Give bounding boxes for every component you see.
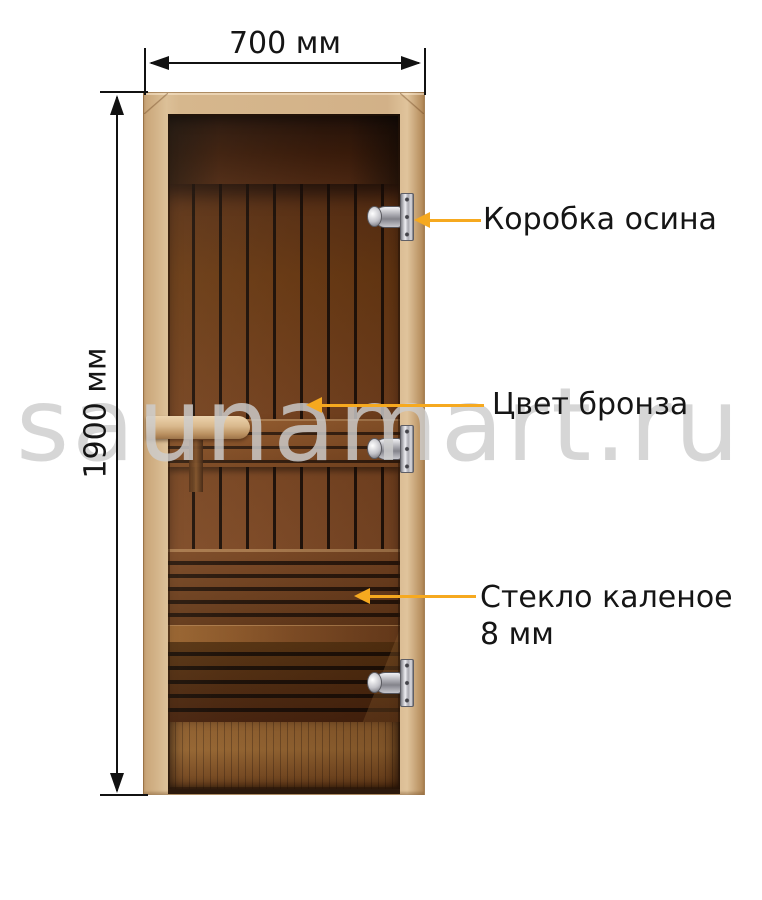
hinge-plate [400,193,414,241]
hinge-top-icon [368,193,414,241]
door-bottom-edge [168,789,400,794]
callout-label-frame: Коробка осина [483,201,717,238]
height-dimension-tick-bottom [100,794,148,796]
width-dimension-label: 700 мм [150,26,420,61]
width-dimension-tick-right [424,48,426,95]
callout-label-glass: Стекло каленое 8 мм [480,579,733,653]
height-dimension-arrow [116,97,118,791]
hinge-knob [374,672,402,694]
callout-label-glass-line1: Стекло каленое [480,579,733,616]
hinge-bottom-icon [368,659,414,707]
frame-miter-right [400,93,424,114]
width-dimension-arrow [151,62,419,64]
callout-label-tint: Цвет бронза [492,386,688,423]
hinge-knob [374,206,402,228]
callout-arrow-tint [320,404,484,407]
sauna-door-product-diagram: 700 мм 1900 мм [0,0,762,900]
callout-arrow-frame [428,219,481,222]
callout-arrow-glass [368,595,476,598]
frame-miter-left [144,93,168,114]
hinge-plate [400,659,414,707]
height-dimension-tick-top [100,91,148,93]
height-dimension-label: 1900 мм [79,347,114,478]
width-dimension-tick-left [144,48,146,95]
callout-label-glass-line2: 8 мм [480,616,733,653]
